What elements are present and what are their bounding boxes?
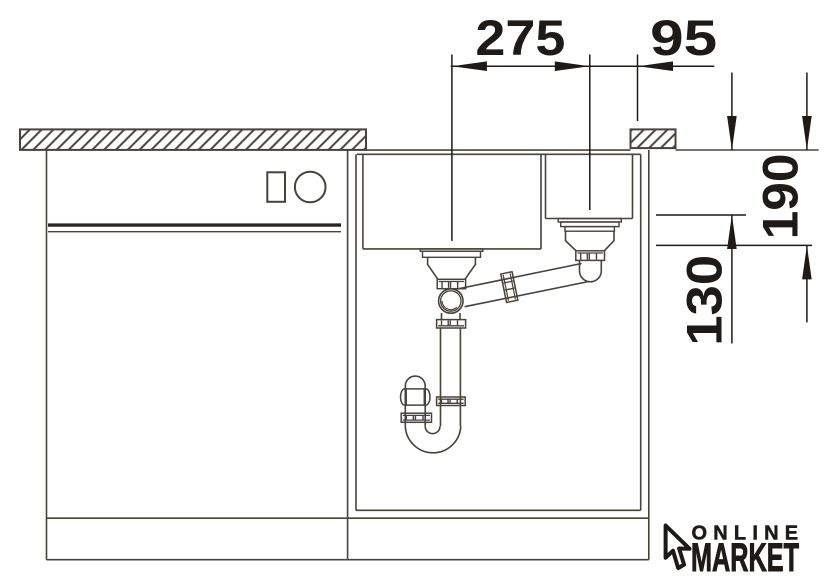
svg-text:130: 130 <box>677 255 733 346</box>
svg-text:MARKET: MARKET <box>691 536 799 580</box>
svg-text:95: 95 <box>650 10 717 66</box>
svg-text:190: 190 <box>753 153 809 239</box>
svg-text:275: 275 <box>475 10 565 66</box>
